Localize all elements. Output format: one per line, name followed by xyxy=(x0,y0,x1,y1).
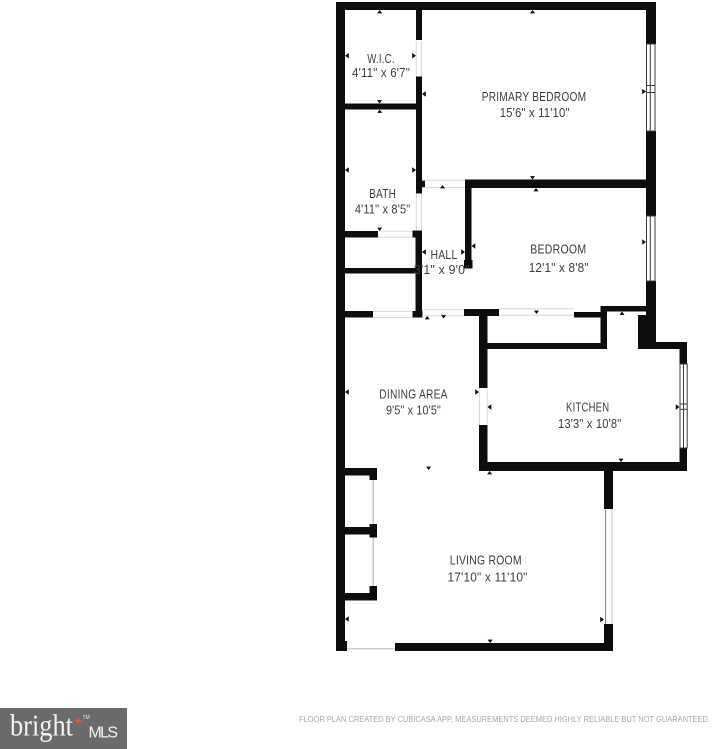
svg-text:17'10" x 11'10": 17'10" x 11'10" xyxy=(448,570,528,585)
svg-text:4'11" x 6'7": 4'11" x 6'7" xyxy=(352,65,410,80)
svg-text:FLOOR PLAN CREATED BY CUBICASA: FLOOR PLAN CREATED BY CUBICASA APP, MEAS… xyxy=(299,714,710,724)
svg-text:PRIMARY BEDROOM: PRIMARY BEDROOM xyxy=(482,89,587,104)
svg-text:TM: TM xyxy=(83,715,90,721)
svg-text:13'3" x 10'8": 13'3" x 10'8" xyxy=(558,416,622,431)
svg-text:9'5" x 10'5": 9'5" x 10'5" xyxy=(386,403,441,418)
svg-text:BEDROOM: BEDROOM xyxy=(530,242,586,257)
svg-text:BATH: BATH xyxy=(369,186,396,201)
svg-text:DINING AREA: DINING AREA xyxy=(379,387,447,402)
svg-text:MLS: MLS xyxy=(89,725,119,742)
svg-text:LIVING ROOM: LIVING ROOM xyxy=(450,553,522,568)
svg-text:KITCHEN: KITCHEN xyxy=(566,400,609,415)
svg-text:3'1" x 9'0": 3'1" x 9'0" xyxy=(414,262,470,277)
svg-text:W.I.C.: W.I.C. xyxy=(367,51,395,66)
svg-text:4'11" x 8'5": 4'11" x 8'5" xyxy=(355,202,411,217)
svg-text:15'6" x 11'10": 15'6" x 11'10" xyxy=(500,105,570,120)
svg-text:HALL: HALL xyxy=(431,247,458,262)
svg-text:bright: bright xyxy=(10,708,73,743)
svg-text:12'1" x 8'8": 12'1" x 8'8" xyxy=(529,260,589,275)
